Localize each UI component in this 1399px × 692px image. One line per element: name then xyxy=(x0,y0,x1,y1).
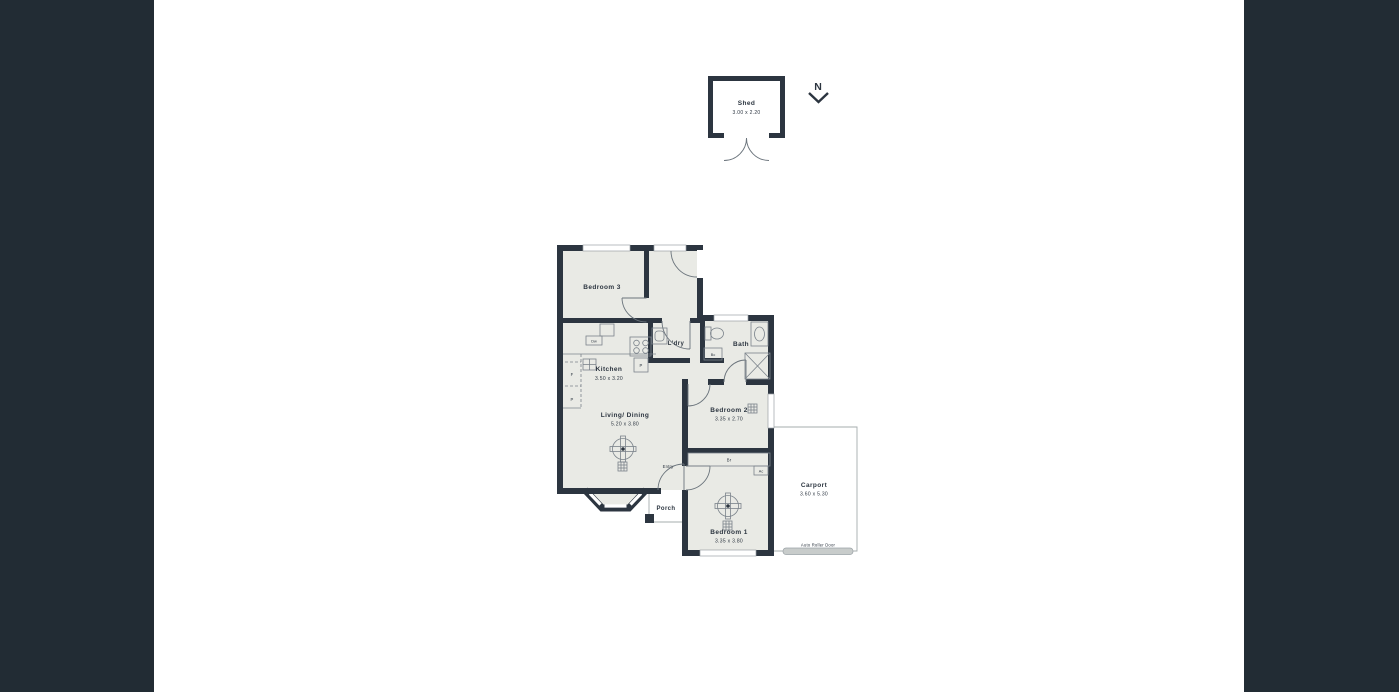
svg-text:P: P xyxy=(640,363,643,368)
floorplan-svg: Shed 3.00 x 2.20 N Dw xyxy=(0,0,1399,692)
svg-text:Ac: Ac xyxy=(759,470,764,474)
room-bedroom3: Bedroom 3 xyxy=(583,284,621,291)
floorplan-page: Shed 3.00 x 2.20 N Dw xyxy=(0,0,1399,692)
room-label: Entry xyxy=(663,464,674,469)
room-label: Kitchen xyxy=(596,366,623,373)
room-dims: 3.35 x 2.70 xyxy=(715,417,743,423)
svg-text:Bc: Bc xyxy=(711,353,716,357)
room-label: Bedroom 1 xyxy=(710,529,748,536)
room-label: Bedroom 3 xyxy=(583,284,621,291)
room-entry: Entry xyxy=(663,464,674,469)
room-dims: 3.50 x 3.20 xyxy=(595,376,623,382)
room-dims: 3.60 x 5.30 xyxy=(800,492,828,498)
window-icon xyxy=(654,245,686,251)
room-label: Carport xyxy=(801,482,828,489)
room-dims: 3.00 x 2.20 xyxy=(732,110,760,116)
room-label: L'dry xyxy=(668,341,685,347)
porch-post xyxy=(645,514,654,523)
fridge-marker: F xyxy=(571,372,574,377)
room-laundry: L'dry xyxy=(668,341,685,347)
room-label: Living/ Dining xyxy=(601,412,650,419)
room-carport: Carport 3.60 x 5.30 Auto Roller Door xyxy=(800,482,836,548)
door-arc xyxy=(724,138,747,161)
roller-door xyxy=(783,548,853,555)
room-label: Porch xyxy=(656,506,675,512)
svg-text:Br: Br xyxy=(727,458,732,463)
door-arc xyxy=(747,138,770,161)
north-arrow-icon: N xyxy=(809,81,828,102)
room-dims: 5.20 x 3.80 xyxy=(611,422,639,428)
room-porch: Porch xyxy=(656,506,675,512)
roller-door-label: Auto Roller Door xyxy=(801,543,836,548)
room-label: Bedroom 2 xyxy=(710,407,748,414)
window-icon xyxy=(583,245,630,251)
room-label: Shed xyxy=(738,100,756,107)
room-bath: Bath xyxy=(733,341,749,348)
window-icon xyxy=(714,315,748,321)
room-dims: 3.35 x 3.80 xyxy=(715,539,743,545)
svg-text:Dw: Dw xyxy=(591,340,597,344)
window-icon xyxy=(700,550,756,556)
room-label: Bath xyxy=(733,341,749,348)
back-door-opening xyxy=(697,250,703,278)
window-icon xyxy=(768,394,774,428)
shed: Shed 3.00 x 2.20 xyxy=(708,76,785,138)
north-label: N xyxy=(814,81,822,93)
pantry-marker: P xyxy=(571,397,574,402)
